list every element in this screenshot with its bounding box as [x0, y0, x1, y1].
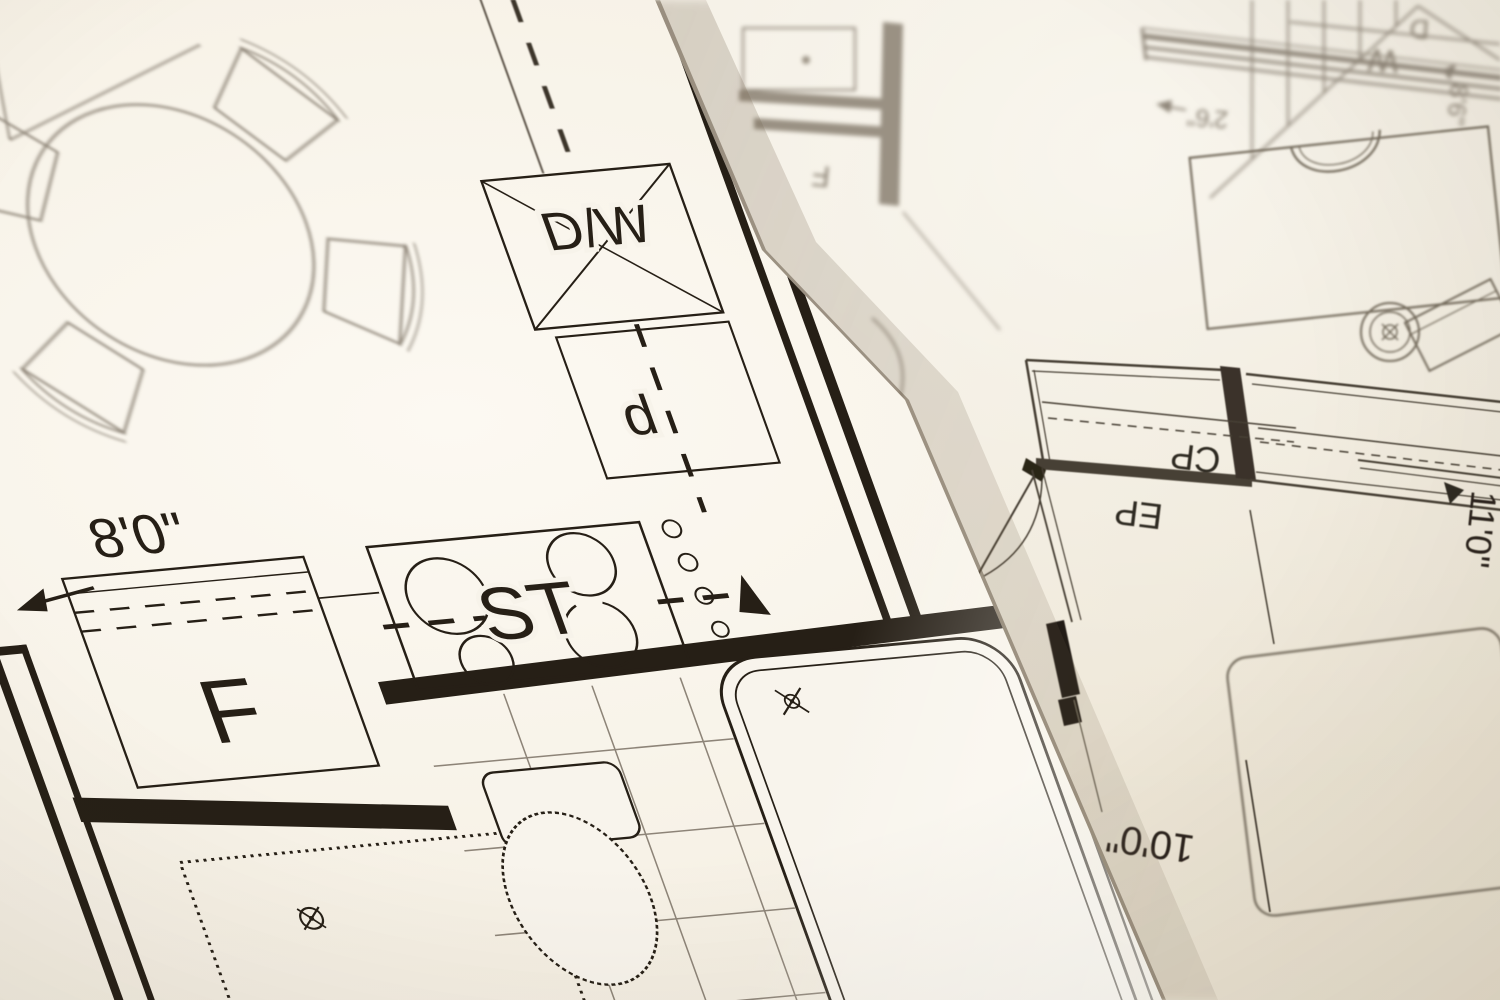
dim-11-0-text: 11'0" [1456, 489, 1500, 570]
dim-2-6: 2'6" [1156, 100, 1229, 133]
blueprint-photo: W D F 2'6" 8'6" [0, 0, 1500, 1000]
closet-ep-label: EP [1112, 491, 1165, 538]
fixture-label-back: F [810, 158, 832, 193]
dresser [1225, 626, 1500, 918]
dim-8-6-text: 8'6" [1441, 83, 1473, 127]
dryer-label: D [1409, 13, 1431, 44]
pillow [1290, 130, 1383, 176]
dim-11-0: 11'0" [1358, 460, 1500, 570]
closet-cp [1026, 360, 1296, 487]
book-shape [1405, 279, 1500, 371]
washer-label: W [1366, 42, 1399, 80]
closet-cp-label: CP [1168, 435, 1223, 482]
dim-2-6-text: 2'6" [1186, 103, 1229, 134]
back-mid-region [1189, 119, 1500, 918]
